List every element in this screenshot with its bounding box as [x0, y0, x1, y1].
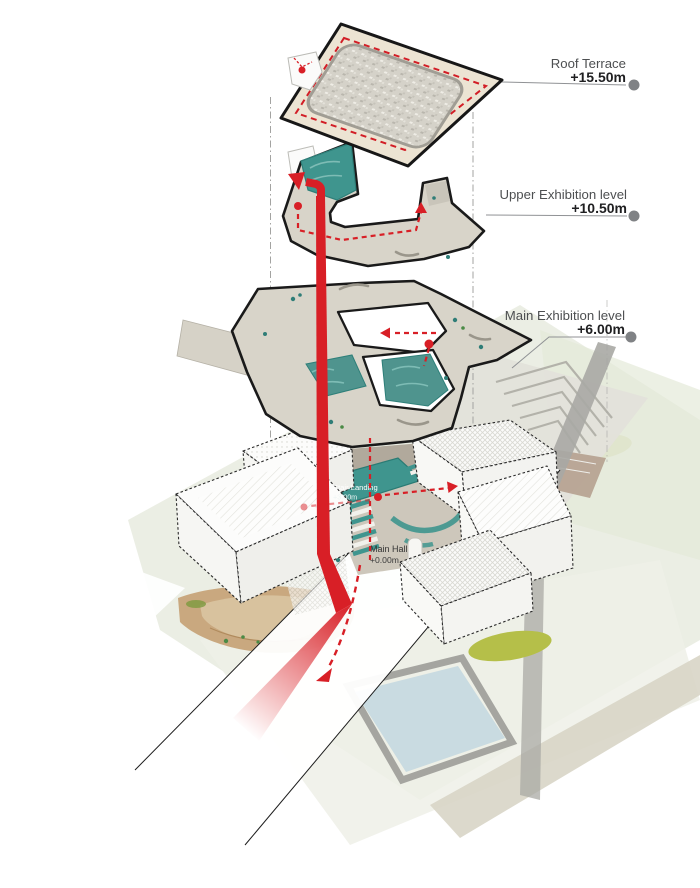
callout-upper-exhibition: Upper Exhibition level +10.50m [486, 187, 640, 222]
route-node-west [301, 504, 308, 511]
route-node-courtyard [374, 493, 382, 501]
plant [432, 196, 436, 200]
shrub-dot [241, 635, 245, 639]
shrub-dot [256, 640, 259, 643]
callout-roof-terrace: Roof Terrace +15.50m [502, 56, 640, 91]
level-callouts: Roof Terrace +15.50m Upper Exhibition le… [486, 56, 640, 368]
exploded-axon-diagram: Stair Landing +3.00m Main Hall +0.00m [0, 0, 700, 888]
callout-main-elevation: +6.00m [577, 321, 625, 337]
plant [291, 297, 295, 301]
callout-dot-upper [629, 211, 640, 222]
main-hall-label: Main Hall [370, 544, 408, 554]
route-node-upper [294, 202, 302, 210]
plant [444, 376, 448, 380]
plant [479, 345, 483, 349]
callout-dot-main [626, 332, 637, 343]
callout-dot-roof [629, 80, 640, 91]
route-node-main [425, 340, 434, 349]
plant [329, 420, 333, 424]
plate-upper-exhibition [283, 142, 484, 266]
diagram-canvas: Stair Landing +3.00m Main Hall +0.00m [0, 0, 700, 888]
roof-route-node [299, 67, 306, 74]
main-hall-elevation: +0.00m [370, 555, 399, 565]
plate-roof-terrace [281, 24, 502, 166]
shrub-dot [224, 639, 228, 643]
plant [340, 425, 344, 429]
plant [453, 318, 457, 322]
plant [461, 326, 465, 330]
callout-upper-elevation: +10.50m [571, 200, 627, 216]
plant [298, 293, 302, 297]
plant [263, 332, 267, 336]
stair-landing-elevation: +3.00m [333, 493, 357, 502]
small-green-patch [186, 600, 206, 608]
plant [446, 255, 450, 259]
callout-roof-elevation: +15.50m [570, 69, 626, 85]
